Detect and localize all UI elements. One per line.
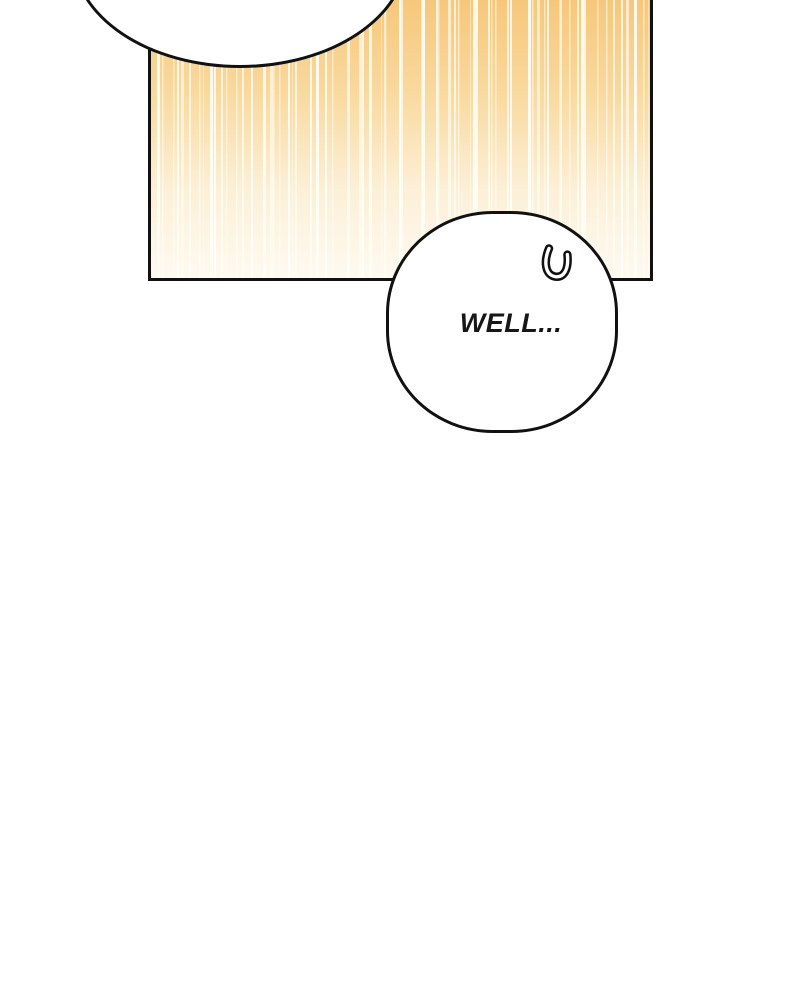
comic-page: WELL... — [0, 0, 800, 1000]
speech-text: WELL... — [389, 308, 615, 339]
u-curl-icon — [537, 240, 577, 286]
speech-bubble-well: WELL... — [386, 211, 618, 433]
